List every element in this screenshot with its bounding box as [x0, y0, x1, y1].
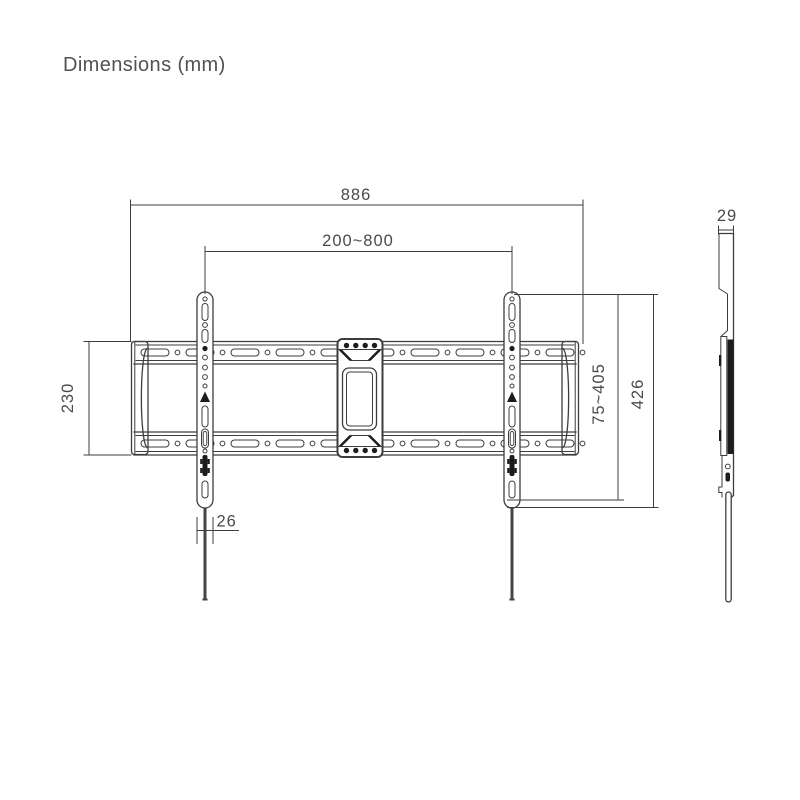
side-view: 29: [717, 207, 737, 602]
dim-vesa-height-range-label: 75~405: [590, 363, 608, 425]
dim-plate-height-label: 230: [59, 383, 77, 414]
wall-plate-end-cap-right: [562, 342, 579, 455]
side-wall-plate-bar: [728, 340, 734, 455]
dim-rail-width: 26: [197, 513, 239, 545]
wall-plate-end-cap-left: [132, 342, 149, 455]
dim-vesa-width-range-label: 200~800: [322, 232, 394, 250]
side-lock-screw: [726, 473, 731, 482]
vesa-rail-left: [197, 292, 213, 600]
vesa-rail-right: [504, 292, 520, 600]
side-hook-clip-top: [719, 355, 721, 366]
side-hook-clip-bottom: [719, 430, 721, 441]
side-tension-rod: [726, 492, 731, 602]
side-lower-bracket: [719, 456, 722, 498]
dim-rail-width-label: 26: [217, 513, 237, 531]
side-bracket-hole: [725, 464, 730, 469]
side-profile-hook-bend: [719, 234, 728, 337]
center-plate: [338, 339, 383, 457]
technical-drawing: 886 200~800 230 26 75~405: [0, 0, 800, 800]
front-view: [132, 292, 585, 600]
dim-overall-width-label: 886: [341, 186, 372, 204]
side-profile: [719, 234, 734, 603]
dim-side-depth: 29: [717, 207, 737, 235]
side-rail-strip: [721, 337, 727, 456]
dim-side-depth-label: 29: [717, 207, 737, 225]
dim-rail-height-label: 426: [629, 379, 647, 410]
dim-vesa-width-range: 200~800: [205, 232, 512, 294]
dim-plate-height: 230: [59, 342, 132, 456]
